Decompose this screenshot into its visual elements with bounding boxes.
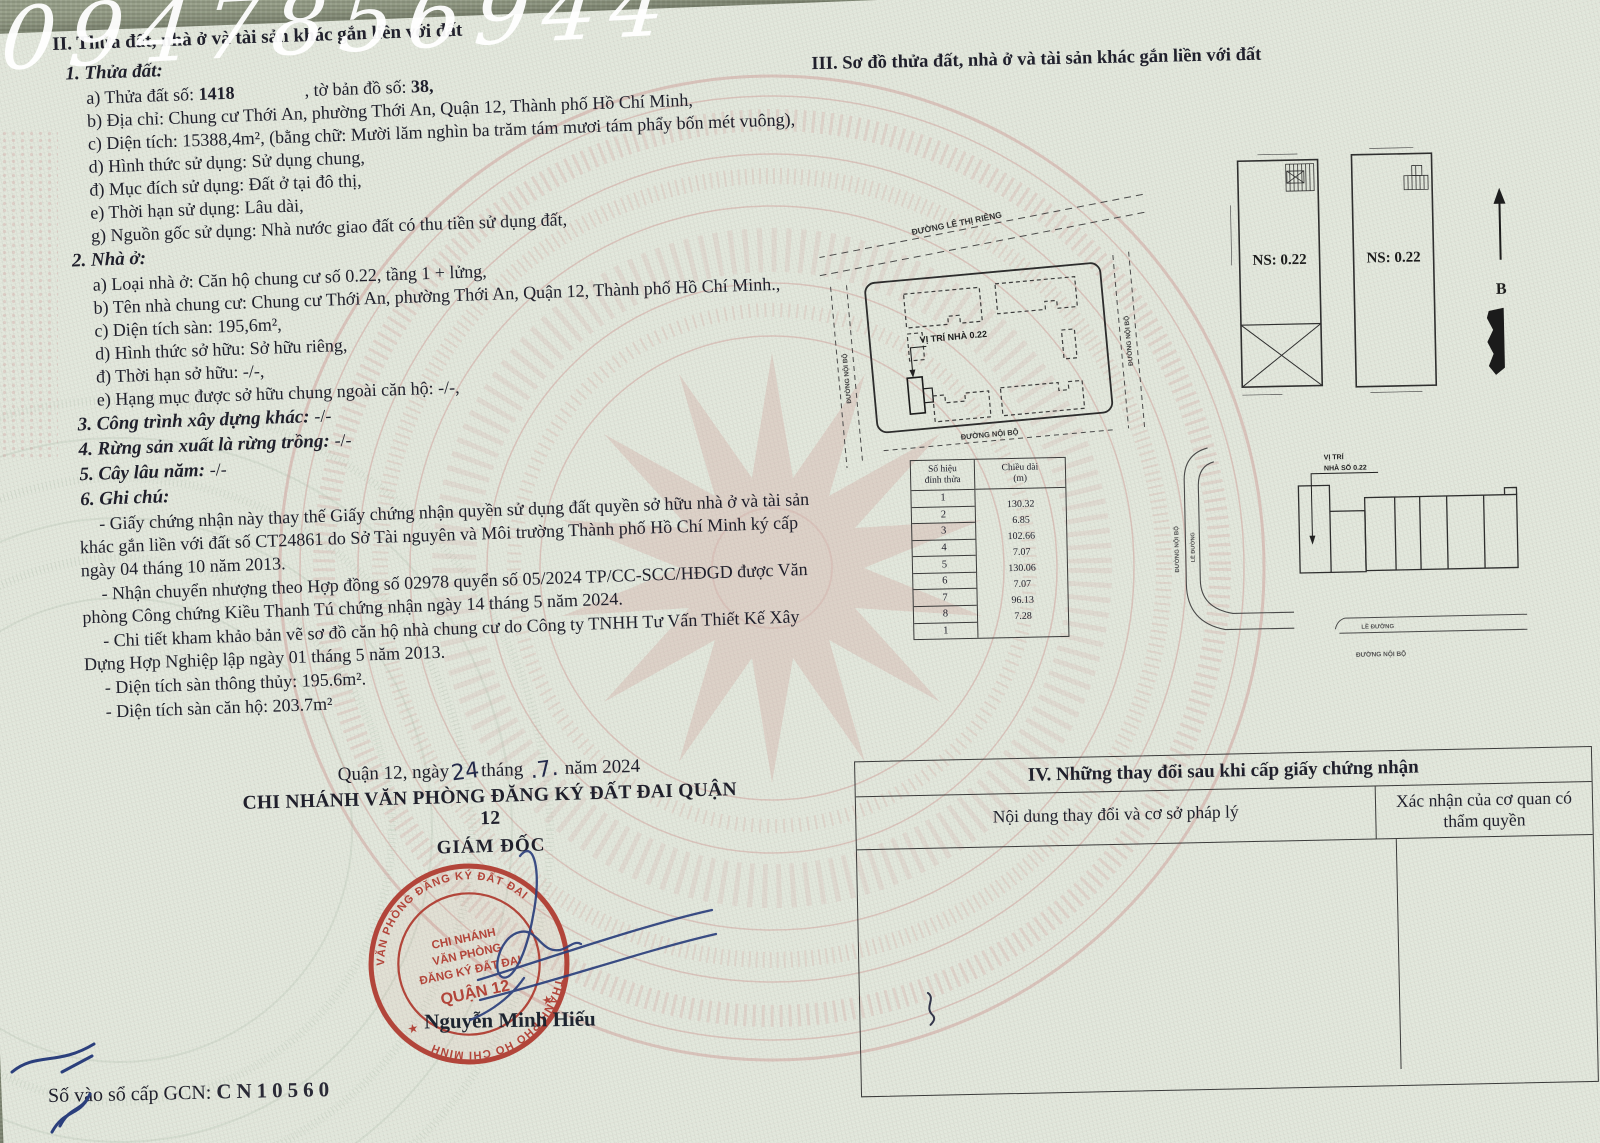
house-022-footprint (907, 377, 925, 414)
road-top-label: ĐƯỜNG LÊ THỊ RIÊNG (910, 208, 1003, 237)
building-outline (995, 277, 1077, 314)
map-sheet-label: , tờ bản đồ số: (304, 77, 407, 101)
building-outline (933, 391, 991, 422)
edge-length: 7.07 (977, 578, 1067, 591)
edge-length: 102.66 (976, 530, 1066, 543)
vertex-col-header: Số hiệuđỉnh thửa (911, 460, 975, 491)
perennial-value: -/- (209, 459, 227, 480)
road-right-label: ĐƯỜNG NỘI BỘ (1121, 315, 1135, 366)
length-col-header: Chiều dài(m) (975, 458, 1066, 490)
north-arrow-icon: B (1484, 187, 1516, 306)
perennial-label: 5. Cây lâu năm: (79, 460, 205, 485)
floor-plan-right (1351, 153, 1436, 387)
section2-block: II. Thửa đất, nhà ở và tài sản khác gắn … (52, 8, 818, 725)
detail-road-bottom-label: ĐƯỜNG NỘI BỘ (1356, 649, 1406, 659)
section3-title: III. Sơ đồ thửa đất, nhà ở và tài sản kh… (811, 42, 1411, 76)
edge-length: 130.06 (977, 562, 1067, 575)
stairs-icon (1286, 164, 1315, 192)
building-outline (1000, 380, 1084, 415)
curb-bottom-label: LỀ ĐƯỜNG (1361, 622, 1394, 631)
vertex-id: 2 (912, 506, 975, 524)
pen-scribbles (4, 1034, 144, 1140)
section4-change-cell (857, 839, 1401, 1080)
dimension-ticks (1229, 147, 1422, 395)
forest-value: -/- (334, 430, 352, 451)
ink-squiggle (918, 988, 949, 1029)
date-mid: tháng (481, 759, 524, 781)
detail-location-diagram: ĐƯỜNG NỘI BỘ LỀ ĐƯỜNG VỊ TRÍ NHÀ SỐ 0.22 (1145, 436, 1600, 696)
other-constructions-value: -/- (314, 405, 332, 426)
section3-block: III. Sơ đồ thửa đất, nhà ở và tài sản kh… (799, 20, 1600, 1143)
section4-col2-header: Xác nhận của cơ quan có thẩm quyền (1375, 782, 1593, 839)
handwritten-month: .7. (527, 755, 562, 784)
detail-label-line1: VỊ TRÍ (1324, 452, 1345, 461)
stairs-icon (1404, 165, 1428, 189)
vertex-id: 8 (914, 606, 977, 624)
certificate-photo: II. Thửa đất, nhà ở và tài sản khác gắn … (0, 0, 1600, 1143)
vertex-id: 1 (911, 490, 974, 508)
floor-plan-left (1238, 160, 1323, 388)
cross-hatch (1241, 324, 1322, 388)
row-house-block (1365, 494, 1518, 570)
floor-plan-diagrams: NS: 0.22 NS: 0.22 (1199, 141, 1455, 436)
handwritten-day: 24 (448, 758, 483, 787)
unit-step (1330, 511, 1366, 573)
other-constructions-label: 3. Công trình xây dựng khác: (77, 406, 310, 435)
gcn-serial-number: CN10560 (216, 1077, 334, 1103)
north-letter: B (1496, 281, 1507, 298)
section4-table: IV. Những thay đổi sau khi cấp giấy chứn… (854, 746, 1599, 1097)
vertex-id: 5 (913, 556, 976, 574)
ribbon-mark-icon (1483, 308, 1510, 379)
edge-length: 130.32 (976, 498, 1066, 511)
parcel-no-value: 1418 (198, 83, 235, 104)
ns-label-right: NS: 0.22 (1366, 249, 1420, 266)
section4-col1-header: Nội dung thay đổi và cơ sở pháp lý (856, 786, 1376, 849)
unit-022-outline (1298, 485, 1331, 573)
section4-confirm-cell (1396, 835, 1598, 1069)
parcel-no-label: a) Thửa đất số: (86, 84, 195, 108)
vertex-id: 4 (912, 539, 975, 557)
edge-length: 7.28 (978, 610, 1068, 623)
road-left-label: ĐƯỜNG NỘI BỘ (840, 353, 854, 404)
building-outline (904, 287, 983, 328)
date-pre: Quận 12, ngày (337, 761, 449, 785)
vertex-id: 7 (913, 589, 976, 607)
site-plan-diagram: ĐƯỜNG LÊ THỊ RIÊNG ĐƯỜNG NỘI BỘ ĐƯỜNG NỘ… (818, 175, 1164, 482)
vertex-id: 1 (914, 622, 977, 639)
ns-label-left: NS: 0.22 (1252, 252, 1306, 269)
signature (428, 828, 728, 1028)
edge-length: 7.07 (977, 546, 1067, 559)
detail-label-line2: NHÀ SỐ 0.22 (1324, 462, 1367, 473)
map-sheet-value: 38, (411, 76, 434, 97)
vertex-id: 6 (913, 573, 976, 591)
date-post: năm 2024 (564, 756, 640, 779)
detail-road-left-label: ĐƯỜNG NỘI BỘ (1172, 526, 1181, 573)
edge-length: 96.13 (978, 594, 1068, 607)
building-outline (1061, 329, 1077, 359)
house-position-label: VỊ TRÍ NHÀ 0.22 (919, 329, 987, 345)
edge-length: 6.85 (976, 514, 1066, 527)
detail-curb-left-label: LỀ ĐƯỜNG (1188, 532, 1197, 562)
vertex-length-table: Số hiệuđỉnh thửa 1 2 3 4 5 6 7 8 1 Chiều… (910, 457, 1070, 640)
vertex-id: 3 (912, 523, 975, 541)
